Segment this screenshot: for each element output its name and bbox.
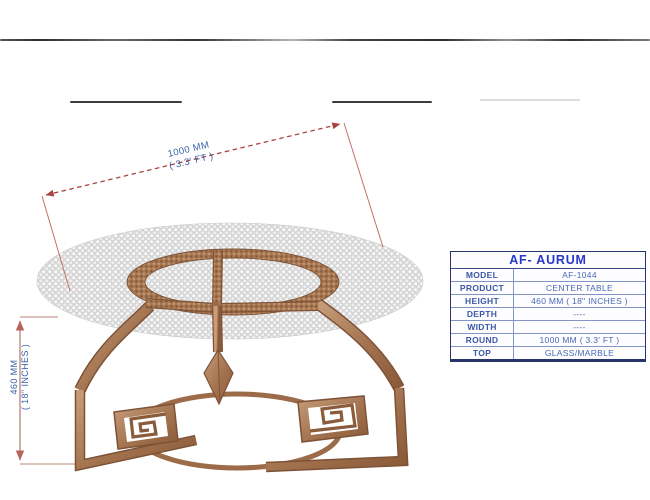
center-column — [217, 306, 218, 352]
spec-table: AF- AURUM MODEL AF-1044 PRODUCT CENTER T… — [450, 251, 646, 362]
spec-value: ---- — [514, 308, 645, 320]
spec-label: PRODUCT — [451, 282, 514, 294]
spec-value: AF-1044 — [514, 269, 645, 281]
spec-table-title: AF- AURUM — [451, 252, 645, 269]
spec-label: WIDTH — [451, 321, 514, 333]
spec-row-round: ROUND 1000 MM ( 3.3' FT ) — [451, 333, 645, 346]
spec-label: TOP — [451, 347, 514, 359]
spec-value: CENTER TABLE — [514, 282, 645, 294]
diameter-extension-right — [344, 123, 383, 247]
spec-value: GLASS/MARBLE — [514, 347, 645, 359]
spec-row-product: PRODUCT CENTER TABLE — [451, 281, 645, 294]
left-scroll-ornament — [114, 404, 178, 449]
right-scroll-ornament — [298, 396, 368, 442]
table-technical-drawing — [0, 0, 650, 500]
spec-row-width: WIDTH ---- — [451, 320, 645, 333]
spec-label: MODEL — [451, 269, 514, 281]
spec-value: ---- — [514, 321, 645, 333]
spec-row-top: TOP GLASS/MARBLE — [451, 346, 645, 359]
spec-row-depth: DEPTH ---- — [451, 307, 645, 320]
spec-row-model: MODEL AF-1044 — [451, 269, 645, 281]
spec-label: HEIGHT — [451, 295, 514, 307]
height-value: 460 MM — [9, 316, 20, 438]
height-dimension-label: 460 MM ( 18" INCHES ) — [9, 316, 31, 438]
spec-label: DEPTH — [451, 308, 514, 320]
height-value-inches: ( 18" INCHES ) — [20, 316, 31, 438]
spec-value: 1000 MM ( 3.3' FT ) — [514, 334, 645, 346]
spec-value: 460 MM ( 18" INCHES ) — [514, 295, 645, 307]
glass-top — [37, 223, 423, 339]
catalog-page: 1000 MM ( 3.3' FT ) 460 MM ( 18" INCHES … — [0, 0, 650, 500]
spec-row-height: HEIGHT 460 MM ( 18" INCHES ) — [451, 294, 645, 307]
spec-label: ROUND — [451, 334, 514, 346]
